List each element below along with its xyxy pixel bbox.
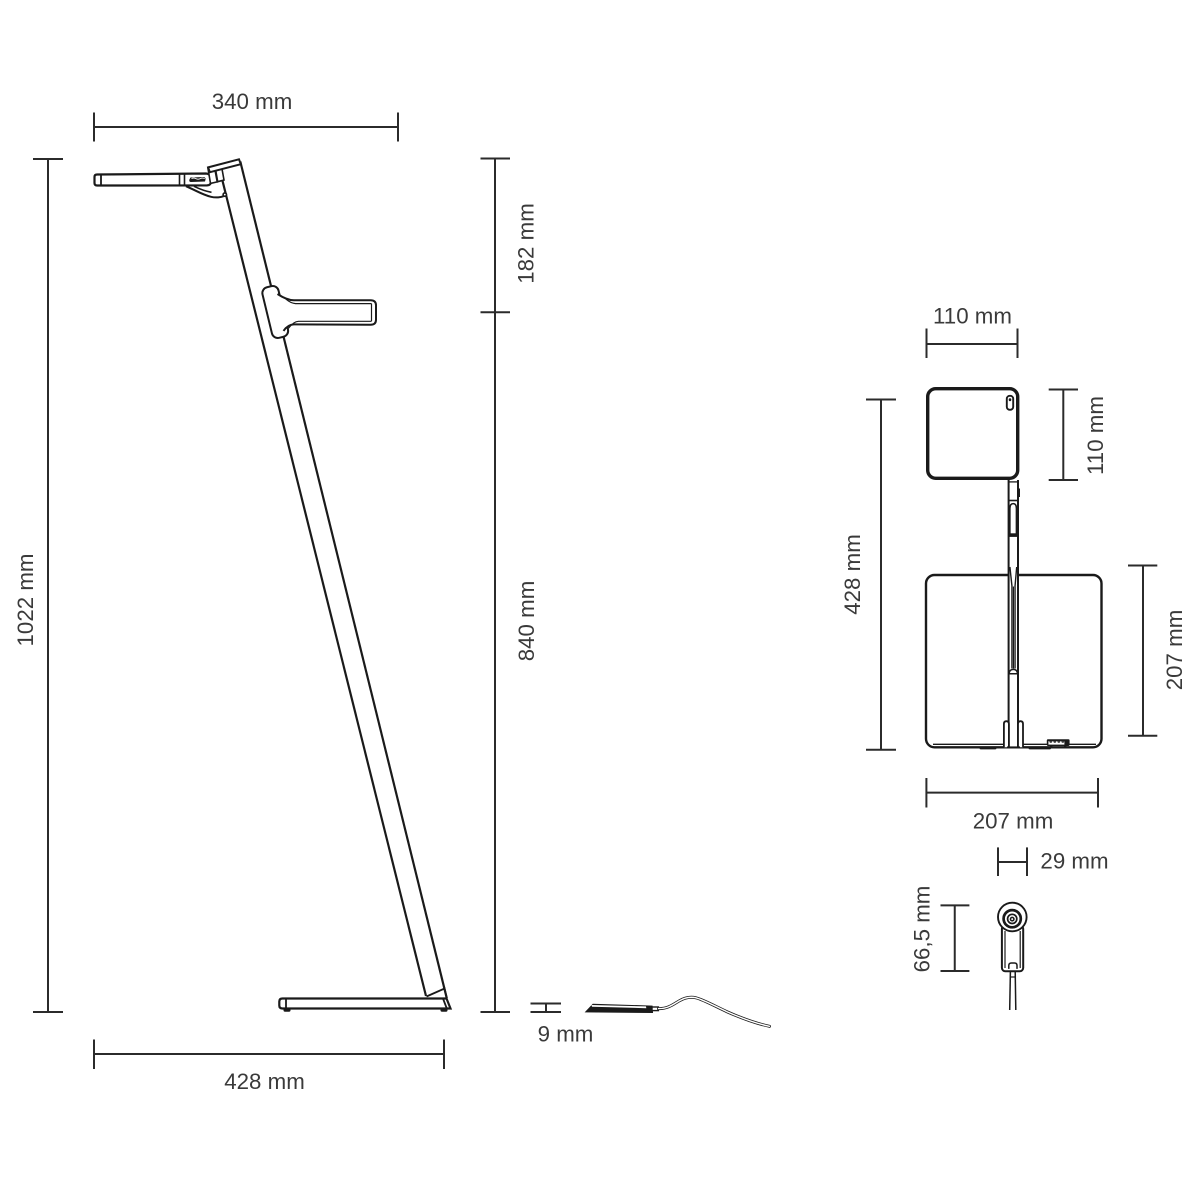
- svg-text:66,5 mm: 66,5 mm: [910, 886, 935, 973]
- svg-text:110 mm: 110 mm: [1083, 396, 1108, 475]
- svg-text:9 mm: 9 mm: [538, 1022, 594, 1047]
- svg-text:207 mm: 207 mm: [1162, 610, 1187, 691]
- svg-text:428 mm: 428 mm: [224, 1069, 305, 1094]
- svg-text:1022 mm: 1022 mm: [13, 554, 38, 647]
- svg-text:207 mm: 207 mm: [973, 809, 1054, 834]
- svg-text:340 mm: 340 mm: [212, 89, 293, 114]
- svg-text:182 mm: 182 mm: [514, 203, 539, 284]
- svg-text:428 mm: 428 mm: [840, 534, 865, 615]
- svg-text:110 mm: 110 mm: [933, 304, 1012, 329]
- svg-text:29 mm: 29 mm: [1040, 849, 1108, 874]
- svg-text:840 mm: 840 mm: [514, 581, 539, 662]
